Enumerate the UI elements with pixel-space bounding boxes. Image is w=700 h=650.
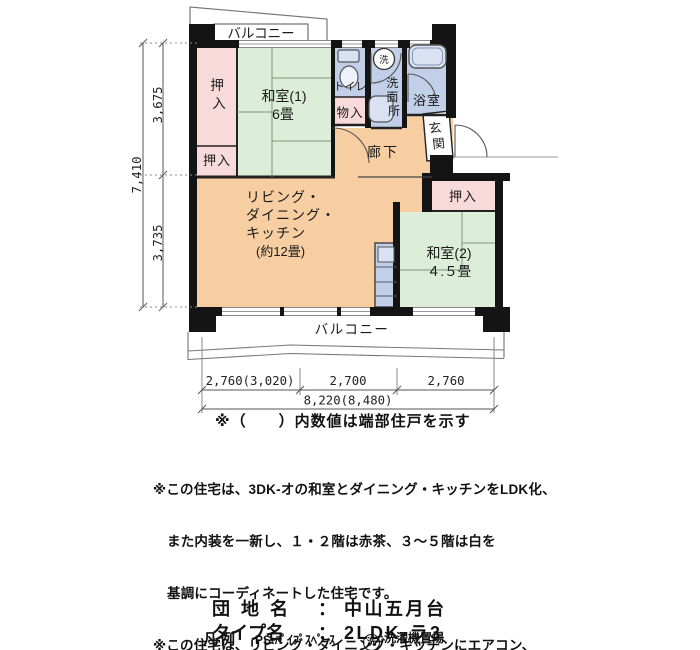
label-oshiire-left-bottom: 押入 bbox=[203, 153, 231, 168]
floorplan-page: 洗 7,410 3,675 3,735 2,760(3,020) 2,700 2… bbox=[0, 0, 700, 650]
label-corridor: 廊下 bbox=[367, 144, 399, 160]
label-ldk-line3: キッチン bbox=[246, 225, 306, 241]
label-ldk-line2: ダイニング・ bbox=[246, 207, 336, 223]
label-char: 所 bbox=[388, 104, 400, 118]
label-washroom: 洗 面 所 bbox=[386, 76, 401, 118]
dim-bottom-seg1: 2,760(3,020) bbox=[206, 374, 295, 388]
dim-left-lower: 3,735 bbox=[151, 224, 165, 261]
remark-line: ※この住宅は、3DK-オの和室とダイニング・キッチンをLDK化、 bbox=[153, 481, 556, 498]
floorplan-drawing: 洗 7,410 3,675 3,735 2,760(3,020) 2,700 2… bbox=[0, 0, 700, 442]
wall-segment bbox=[331, 48, 335, 177]
legend-ps: PS:ﾊﾟｲﾌﾟｽﾍﾟｰｽ bbox=[255, 631, 335, 648]
label-char: 面 bbox=[386, 90, 398, 104]
label-ldk-line1: リビング・ bbox=[246, 189, 321, 205]
label-washitsu2: 和室(2) bbox=[426, 245, 471, 261]
label-oshiire-right: 押入 bbox=[449, 189, 477, 204]
wall-segment bbox=[483, 307, 510, 332]
label-washitsu1: 和室(1) bbox=[261, 88, 306, 104]
legend-label: 凡例 bbox=[203, 628, 237, 649]
wall-segment bbox=[189, 40, 197, 316]
label-char: 押 bbox=[210, 78, 224, 93]
wall-segment bbox=[422, 173, 510, 181]
wall-segment bbox=[446, 40, 456, 118]
dim-bottom-seg3: 2,760 bbox=[427, 374, 464, 388]
wall-segment bbox=[422, 173, 432, 212]
dim-left-total: 7,410 bbox=[130, 156, 144, 193]
dimension-left bbox=[139, 39, 197, 311]
label-bath: 浴室 bbox=[413, 93, 441, 108]
label-washitsu2-size: ４.５畳 bbox=[427, 264, 471, 279]
dim-left-upper: 3,675 bbox=[151, 86, 165, 123]
label-washitsu1-size: 6畳 bbox=[272, 106, 294, 122]
label-monoire: 物入 bbox=[336, 106, 363, 120]
label-balcony-bottom: バルコニー bbox=[315, 322, 390, 337]
legend-washer-text: :洗濯機置場 bbox=[380, 631, 444, 645]
wall-segment bbox=[402, 40, 407, 128]
label-toilet: トイレ bbox=[334, 81, 367, 93]
legend-row: 凡例 PS:ﾊﾟｲﾌﾟｽﾍﾟｰｽ 洗:洗濯機置場 bbox=[0, 628, 700, 650]
washer-mark-label: 洗 bbox=[379, 54, 389, 66]
label-char: 玄 bbox=[428, 120, 442, 136]
paren-note: ※（ ）内数値は端部住戸を示す bbox=[215, 410, 471, 431]
label-char: 関 bbox=[432, 136, 446, 151]
bathtub-fixture bbox=[409, 45, 446, 68]
legend-washer: 洗:洗濯機置場 bbox=[363, 629, 444, 650]
genkan-step bbox=[423, 111, 453, 161]
washer-circle-icon: 洗 bbox=[363, 634, 380, 650]
washing-machine-mark: 洗 bbox=[374, 49, 395, 70]
label-char: 洗 bbox=[386, 76, 398, 90]
wall-segment bbox=[495, 181, 503, 307]
label-balcony-top: バルコニー bbox=[227, 26, 294, 41]
dim-bottom-total: 8,220(8,480) bbox=[304, 394, 393, 408]
label-char: 入 bbox=[212, 96, 226, 111]
dim-bottom-seg2: 2,700 bbox=[329, 374, 366, 388]
genkan-door-arc bbox=[455, 125, 487, 157]
label-ldk-size: (約12畳) bbox=[256, 244, 305, 259]
remark-line: また内装を一新し、１・２階は赤茶、３～５階は白を bbox=[153, 533, 556, 550]
